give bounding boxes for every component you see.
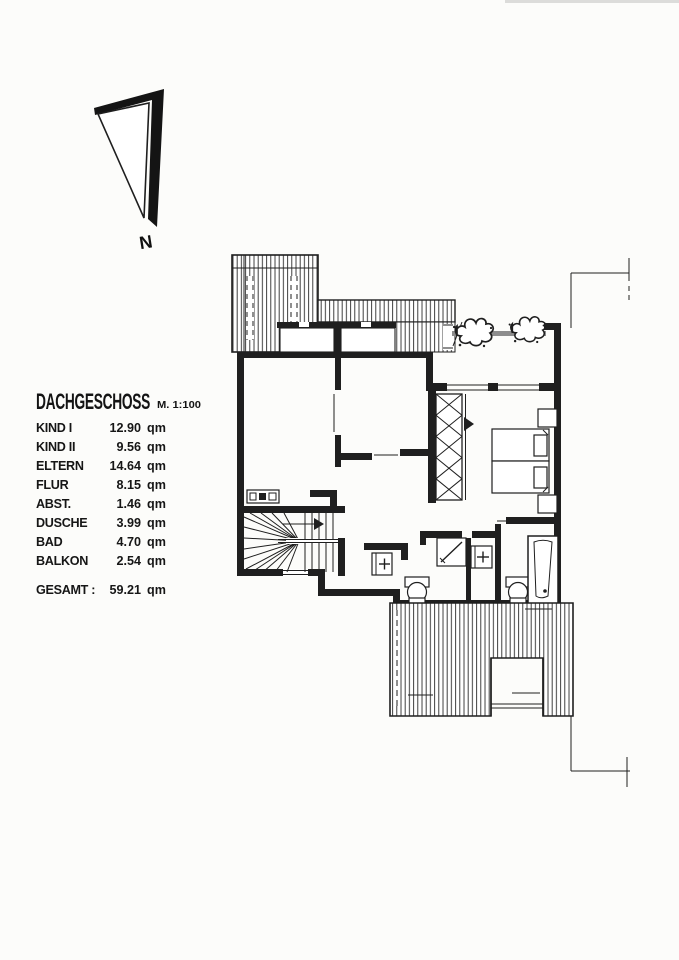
area-unit: qm xyxy=(147,478,166,492)
room-area: 12.90 xyxy=(109,421,141,435)
window xyxy=(341,328,395,352)
area-unit: qm xyxy=(147,440,166,454)
washbasin-icon xyxy=(372,553,392,575)
staircase xyxy=(244,490,338,572)
chimney-shaft xyxy=(436,394,474,500)
room-label: BALKON xyxy=(36,554,88,568)
plant-icon xyxy=(509,317,546,343)
bedroom-furniture xyxy=(492,409,557,513)
north-arrow-icon: N xyxy=(94,89,164,253)
window xyxy=(280,328,334,352)
total-area: 59.21 xyxy=(109,583,141,597)
legend-row: ELTERN 14.64 qm xyxy=(36,459,166,473)
legend-row: ABST. 1.46 qm xyxy=(36,497,166,511)
page-title: DACHGESCHOSS xyxy=(36,389,150,414)
legend-row: KIND II 9.56 qm xyxy=(36,440,166,454)
room-label: ELTERN xyxy=(36,459,84,473)
legend-row: DUSCHE 3.99 qm xyxy=(36,516,166,530)
area-unit: qm xyxy=(147,516,166,530)
shower-icon xyxy=(437,538,466,566)
room-label: BAD xyxy=(36,535,63,549)
room-area: 1.46 xyxy=(116,497,141,511)
legend-row: BAD 4.70 qm xyxy=(36,535,166,549)
area-legend: DACHGESCHOSS M. 1:100 KIND I 12.90 qm KI… xyxy=(36,389,201,597)
total-label: GESAMT : xyxy=(36,583,95,597)
nightstand-icon xyxy=(538,409,557,427)
toilet-icon xyxy=(506,577,530,605)
legend-row: KIND I 12.90 qm xyxy=(36,421,166,435)
floor-plan xyxy=(232,255,630,787)
room-area: 8.15 xyxy=(116,478,141,492)
room-label: ABST. xyxy=(36,497,71,511)
balcony xyxy=(452,317,546,347)
legend-total-row: GESAMT : 59.21 qm xyxy=(36,583,166,597)
scanned-floor-plan-page: { "page": { "background": "#fcfcfa", "in… xyxy=(0,0,679,960)
area-unit: qm xyxy=(147,583,166,597)
door-arrow-icon xyxy=(464,417,474,431)
plant-icon xyxy=(453,319,493,348)
roof-outline xyxy=(571,258,630,787)
nightstand-icon xyxy=(538,495,557,513)
area-unit: qm xyxy=(147,459,166,473)
bed-icon xyxy=(492,461,549,493)
toilet-icon xyxy=(405,577,429,605)
room-label: DUSCHE xyxy=(36,516,87,530)
room-area: 9.56 xyxy=(116,440,141,454)
area-unit: qm xyxy=(147,535,166,549)
washbasin-icon xyxy=(471,546,492,568)
area-unit: qm xyxy=(147,497,166,511)
room-area: 3.99 xyxy=(116,516,141,530)
scale-label: M. 1:100 xyxy=(157,399,201,411)
room-label: KIND I xyxy=(36,421,72,435)
area-unit: qm xyxy=(147,554,166,568)
floor-plan-drawing: N DACHGESCHOSS M. 1:100 KIND I 12.90 qm … xyxy=(0,0,679,960)
room-label: FLUR xyxy=(36,478,69,492)
roof-hatch-bottom xyxy=(390,603,573,716)
room-label: KIND II xyxy=(36,440,75,454)
scan-artifact xyxy=(505,0,679,3)
room-area: 14.64 xyxy=(109,459,141,473)
room-area: 2.54 xyxy=(116,554,141,568)
legend-row: BALKON 2.54 qm xyxy=(36,554,166,568)
legend-row: FLUR 8.15 qm xyxy=(36,478,166,492)
room-area: 4.70 xyxy=(116,535,141,549)
north-label: N xyxy=(138,231,154,253)
bathtub-icon xyxy=(528,536,558,604)
area-unit: qm xyxy=(147,421,166,435)
bed-icon xyxy=(492,429,549,461)
